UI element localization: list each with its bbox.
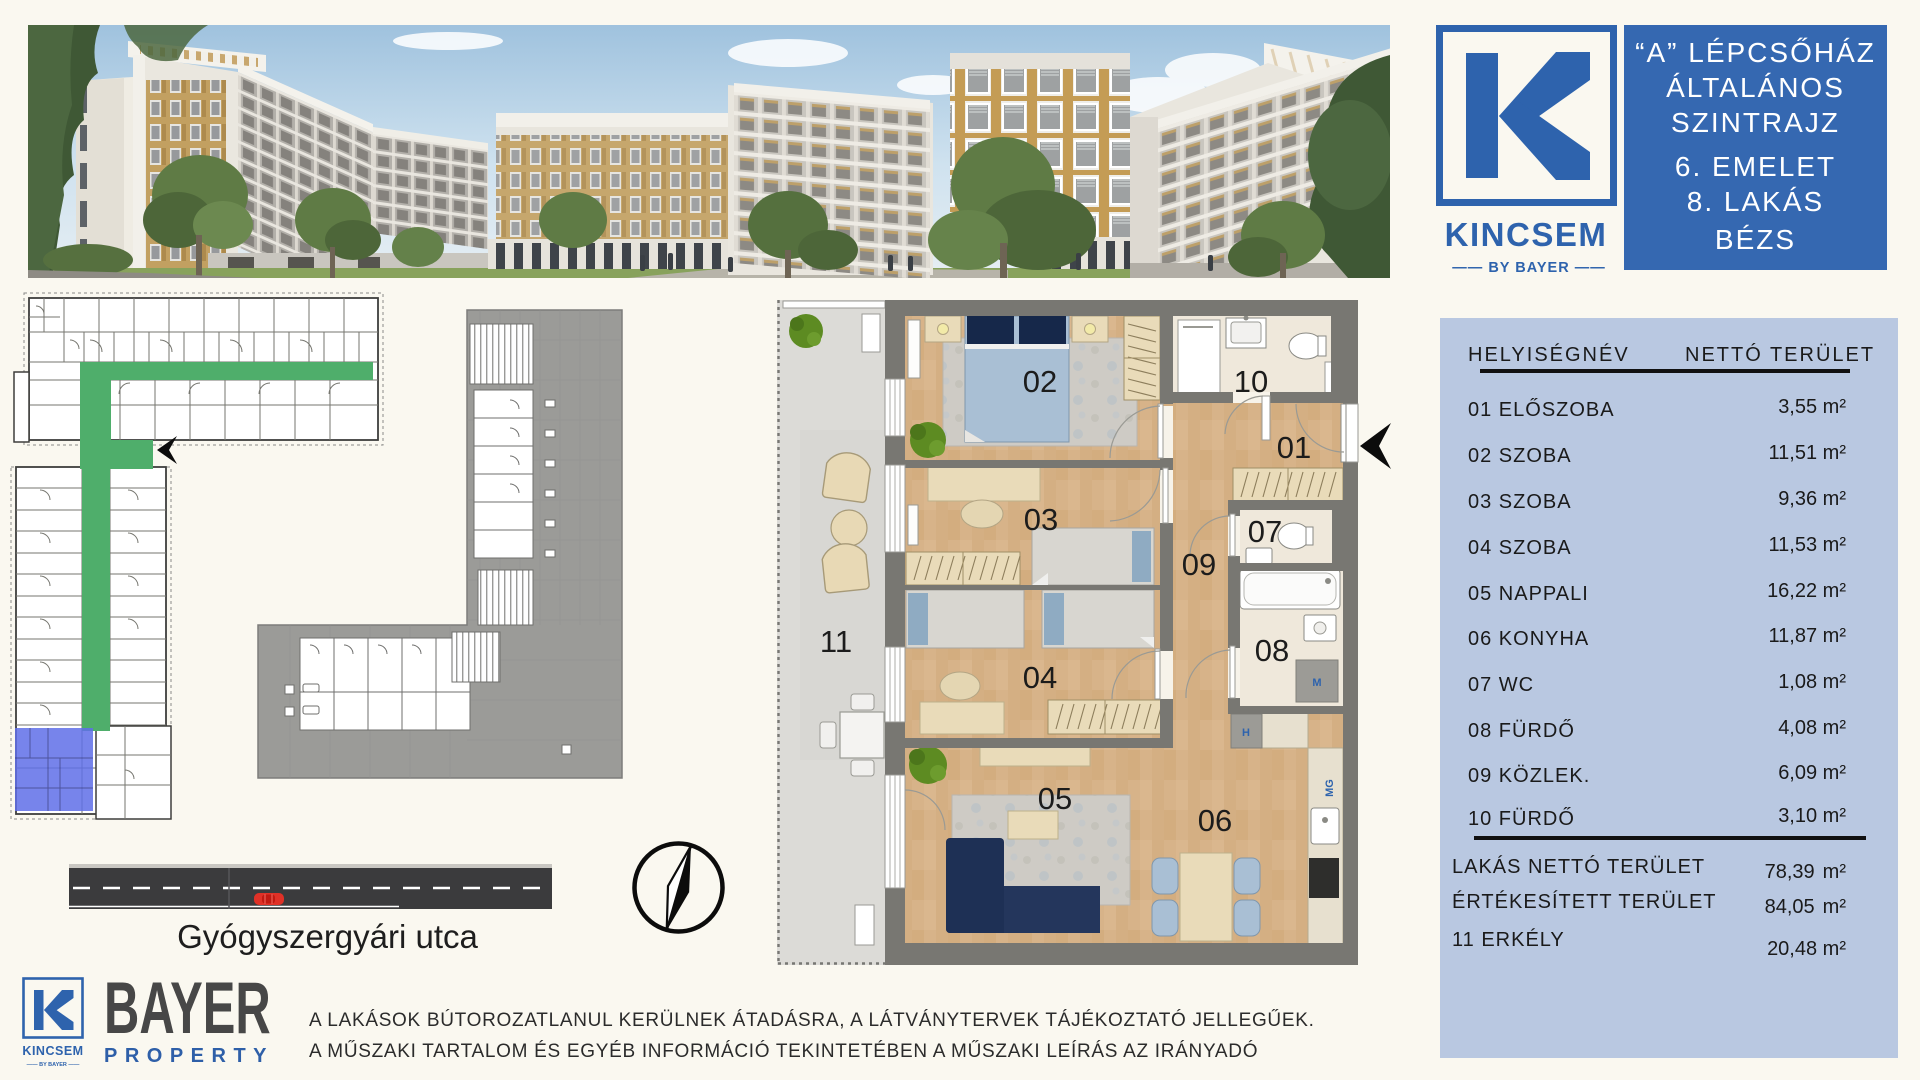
- svg-text:03: 03: [1024, 502, 1058, 537]
- svg-text:MG: MG: [1324, 779, 1336, 797]
- svg-text:05: 05: [1038, 781, 1072, 816]
- svg-text:07: 07: [1248, 514, 1282, 549]
- svg-text:08: 08: [1255, 633, 1289, 668]
- svg-text:KINCSEM: KINCSEM: [22, 1044, 83, 1058]
- svg-text:11: 11: [820, 624, 852, 659]
- svg-text:H: H: [1242, 727, 1250, 739]
- svg-text:—— BY BAYER ——: —— BY BAYER ——: [1452, 260, 1605, 276]
- svg-text:01: 01: [1277, 430, 1311, 465]
- svg-text:KINCSEM: KINCSEM: [1445, 216, 1608, 253]
- svg-text:09: 09: [1182, 547, 1216, 582]
- svg-text:10: 10: [1234, 364, 1268, 399]
- svg-text:M: M: [1312, 677, 1321, 689]
- svg-text:04: 04: [1023, 660, 1057, 695]
- svg-text:—— BY BAYER ——: —— BY BAYER ——: [27, 1062, 80, 1068]
- svg-text:06: 06: [1198, 803, 1232, 838]
- svg-text:02: 02: [1023, 364, 1057, 399]
